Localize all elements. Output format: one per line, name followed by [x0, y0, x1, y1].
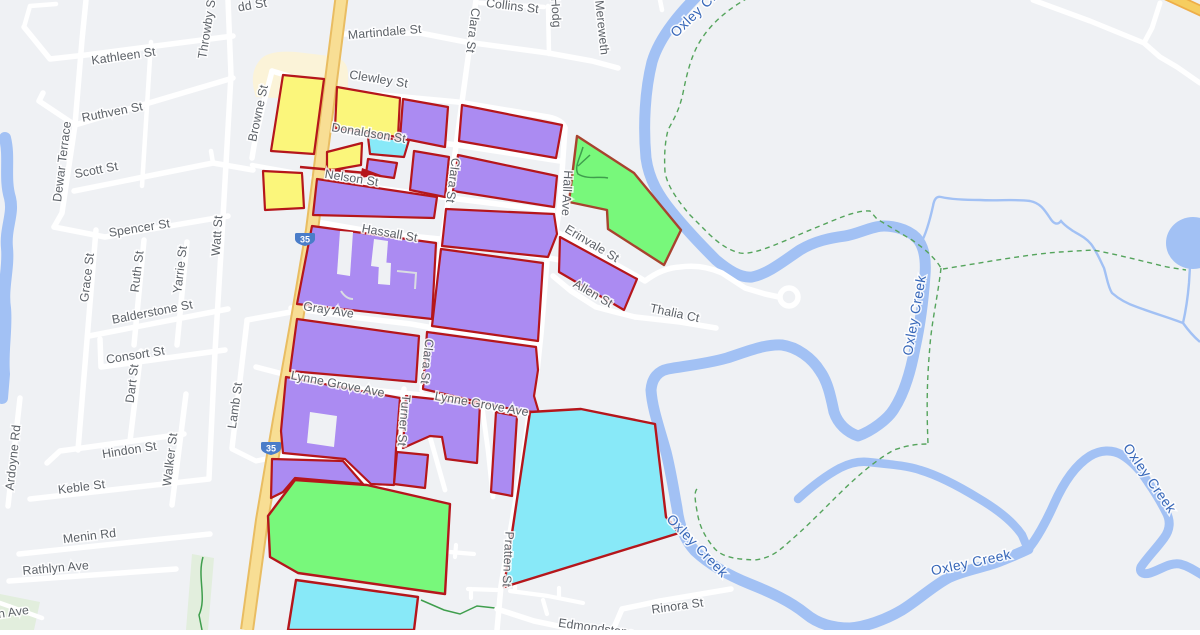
- svg-text:35: 35: [300, 235, 310, 245]
- svg-text:Hall Ave: Hall Ave: [559, 170, 575, 216]
- svg-text:Hodg: Hodg: [548, 0, 564, 28]
- svg-text:Watt St: Watt St: [209, 215, 226, 257]
- svg-text:Pratten St: Pratten St: [500, 531, 517, 588]
- svg-text:35: 35: [266, 444, 276, 454]
